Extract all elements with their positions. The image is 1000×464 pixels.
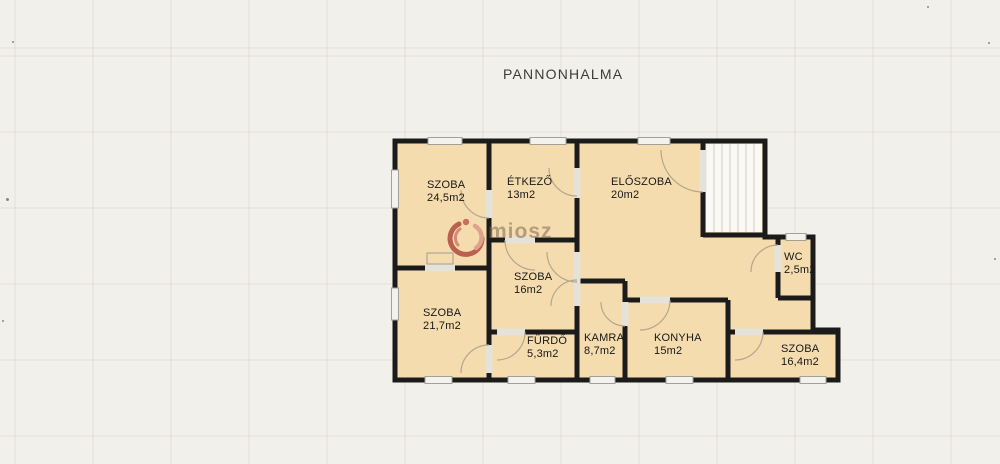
room-name: ELŐSZOBA <box>611 176 672 189</box>
room-name: SZOBA <box>781 343 819 356</box>
room-area: 15m2 <box>654 345 702 358</box>
room-name: KAMRA <box>584 332 624 345</box>
room-name: FÜRDŐ <box>527 335 567 348</box>
double-door-leaf <box>427 253 453 264</box>
staircase <box>706 144 762 232</box>
room-name: ÉTKEZŐ <box>507 176 552 189</box>
room-label-etkezo: ÉTKEZŐ 13m2 <box>507 176 552 202</box>
room-label-wc: WC 2,5m2 <box>784 251 816 277</box>
room-label-szoba-16-4: SZOBA 16,4m2 <box>781 343 819 369</box>
room-label-furdo: FÜRDŐ 5,3m2 <box>527 335 567 361</box>
room-area: 16,4m2 <box>781 356 819 369</box>
room-label-konyha: KONYHA 15m2 <box>654 332 702 358</box>
room-name: KONYHA <box>654 332 702 345</box>
room-label-szoba-24-5: SZOBA 24,5m2 <box>427 179 465 205</box>
room-area: 5,3m2 <box>527 348 567 361</box>
room-name: SZOBA <box>423 307 461 320</box>
room-area: 2,5m2 <box>784 264 816 277</box>
room-label-szoba-21-7: SZOBA 21,7m2 <box>423 307 461 333</box>
room-label-eloszoba: ELŐSZOBA 20m2 <box>611 176 672 202</box>
room-area: 13m2 <box>507 189 552 202</box>
room-name: WC <box>784 251 816 264</box>
floorplan-drawing <box>0 0 1000 464</box>
room-area: 24,5m2 <box>427 192 465 205</box>
room-name: SZOBA <box>427 179 465 192</box>
room-area: 8,7m2 <box>584 345 624 358</box>
room-name: SZOBA <box>514 271 552 284</box>
room-area: 21,7m2 <box>423 320 461 333</box>
room-area: 16m2 <box>514 284 552 297</box>
floorplan-page: PANNONHALMA <box>0 0 1000 464</box>
room-label-szoba-16: SZOBA 16m2 <box>514 271 552 297</box>
room-label-kamra: KAMRA 8,7m2 <box>584 332 624 358</box>
room-area: 20m2 <box>611 189 672 202</box>
